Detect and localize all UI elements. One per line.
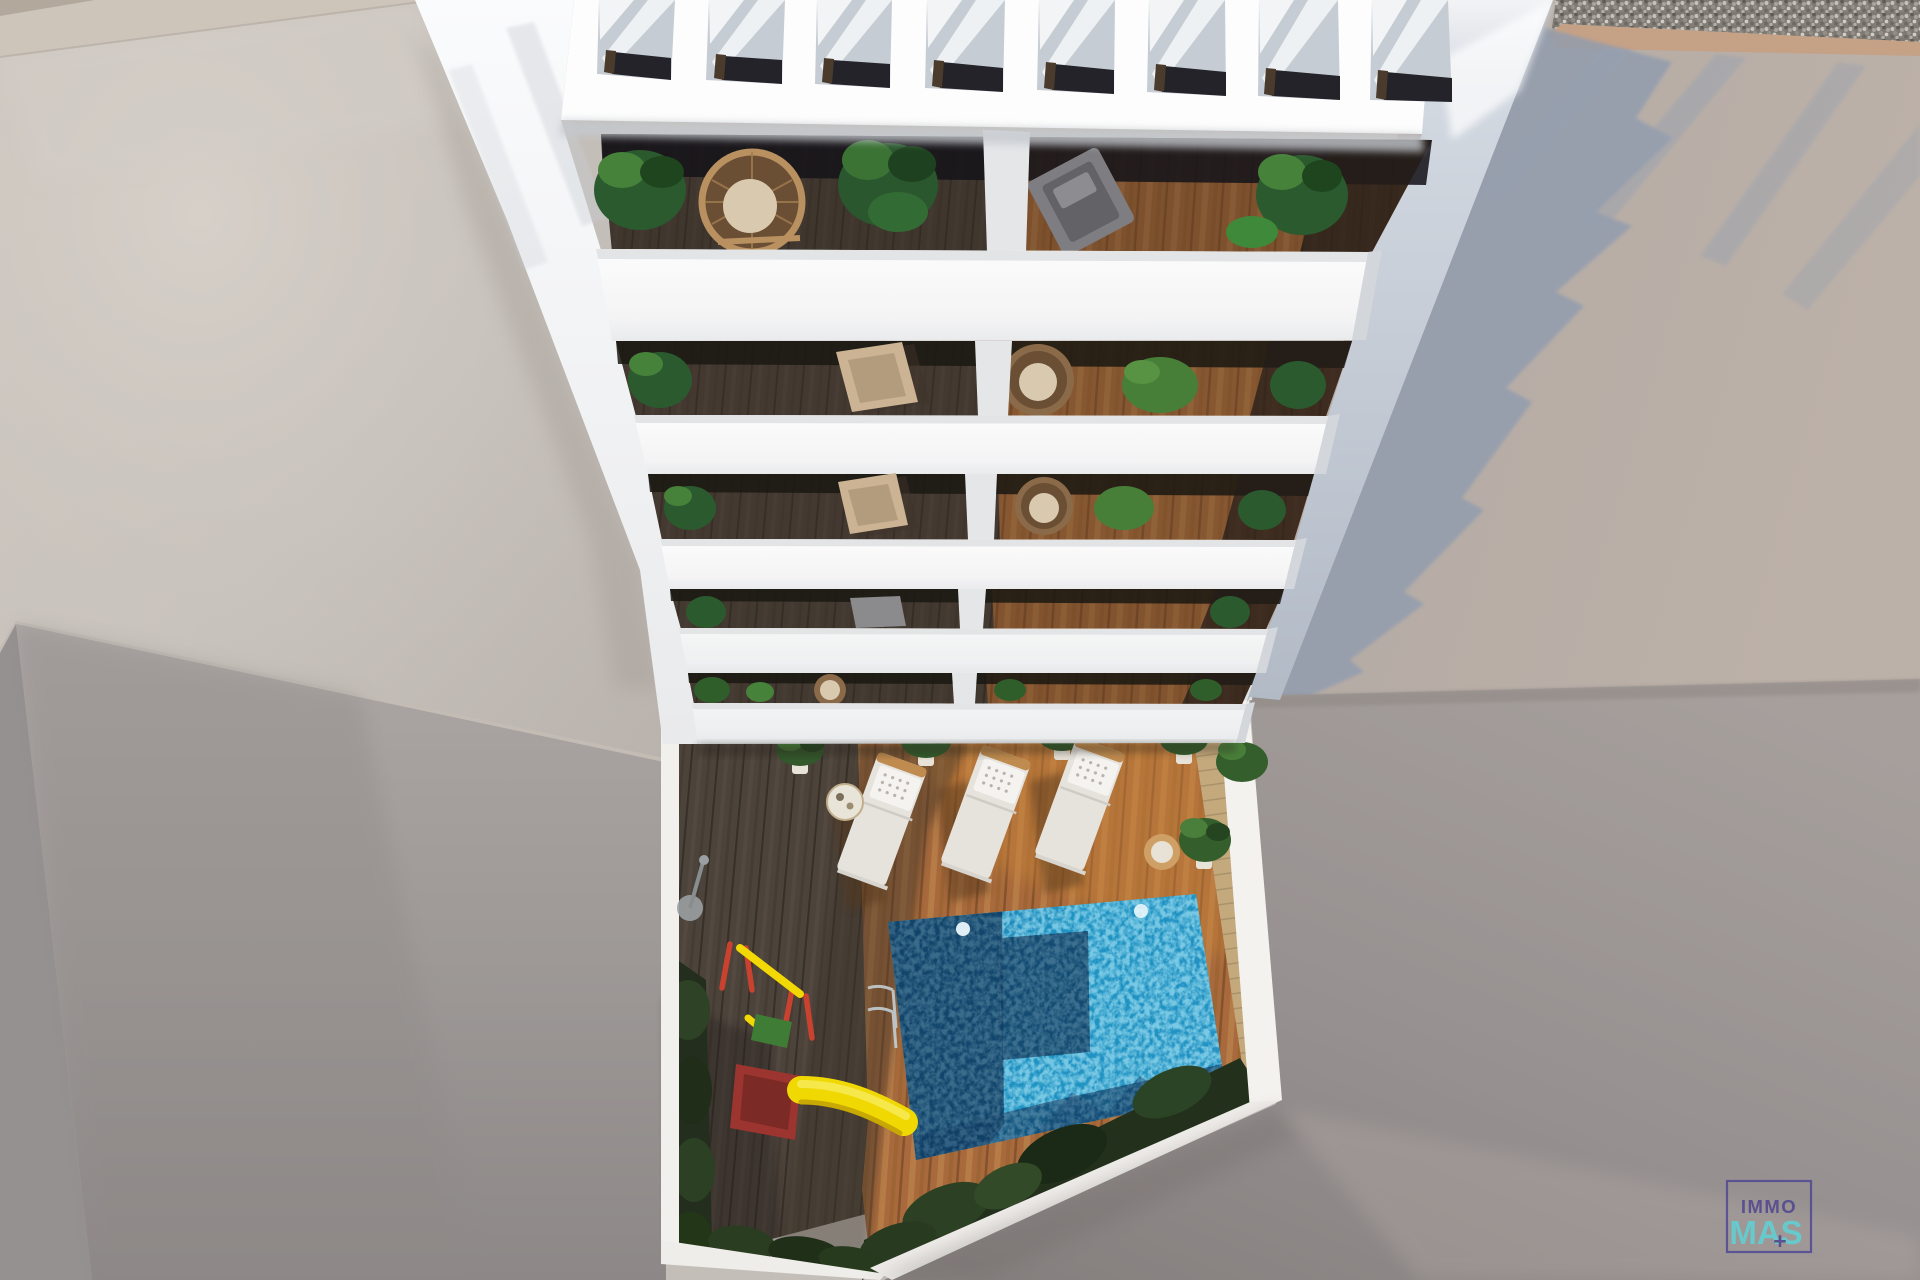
svg-text:+: +	[1773, 1228, 1786, 1254]
svg-text:MAS: MAS	[1729, 1214, 1802, 1251]
